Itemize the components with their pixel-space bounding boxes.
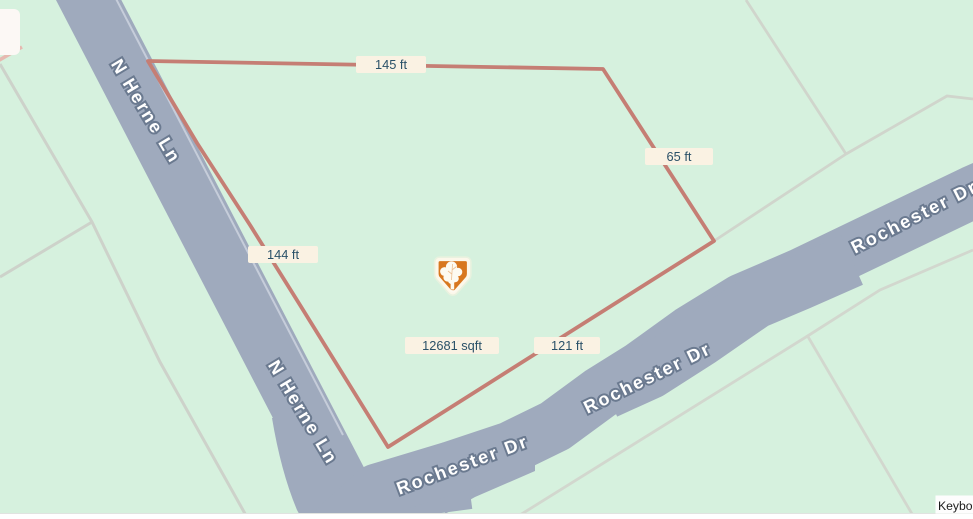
- svg-text:121 ft: 121 ft: [551, 338, 583, 353]
- svg-text:144 ft: 144 ft: [267, 247, 299, 262]
- svg-text:65 ft: 65 ft: [667, 149, 692, 164]
- svg-text:145 ft: 145 ft: [375, 57, 407, 72]
- svg-text:12681 sqft: 12681 sqft: [422, 338, 482, 353]
- svg-text:Keyboar: Keyboar: [938, 499, 973, 513]
